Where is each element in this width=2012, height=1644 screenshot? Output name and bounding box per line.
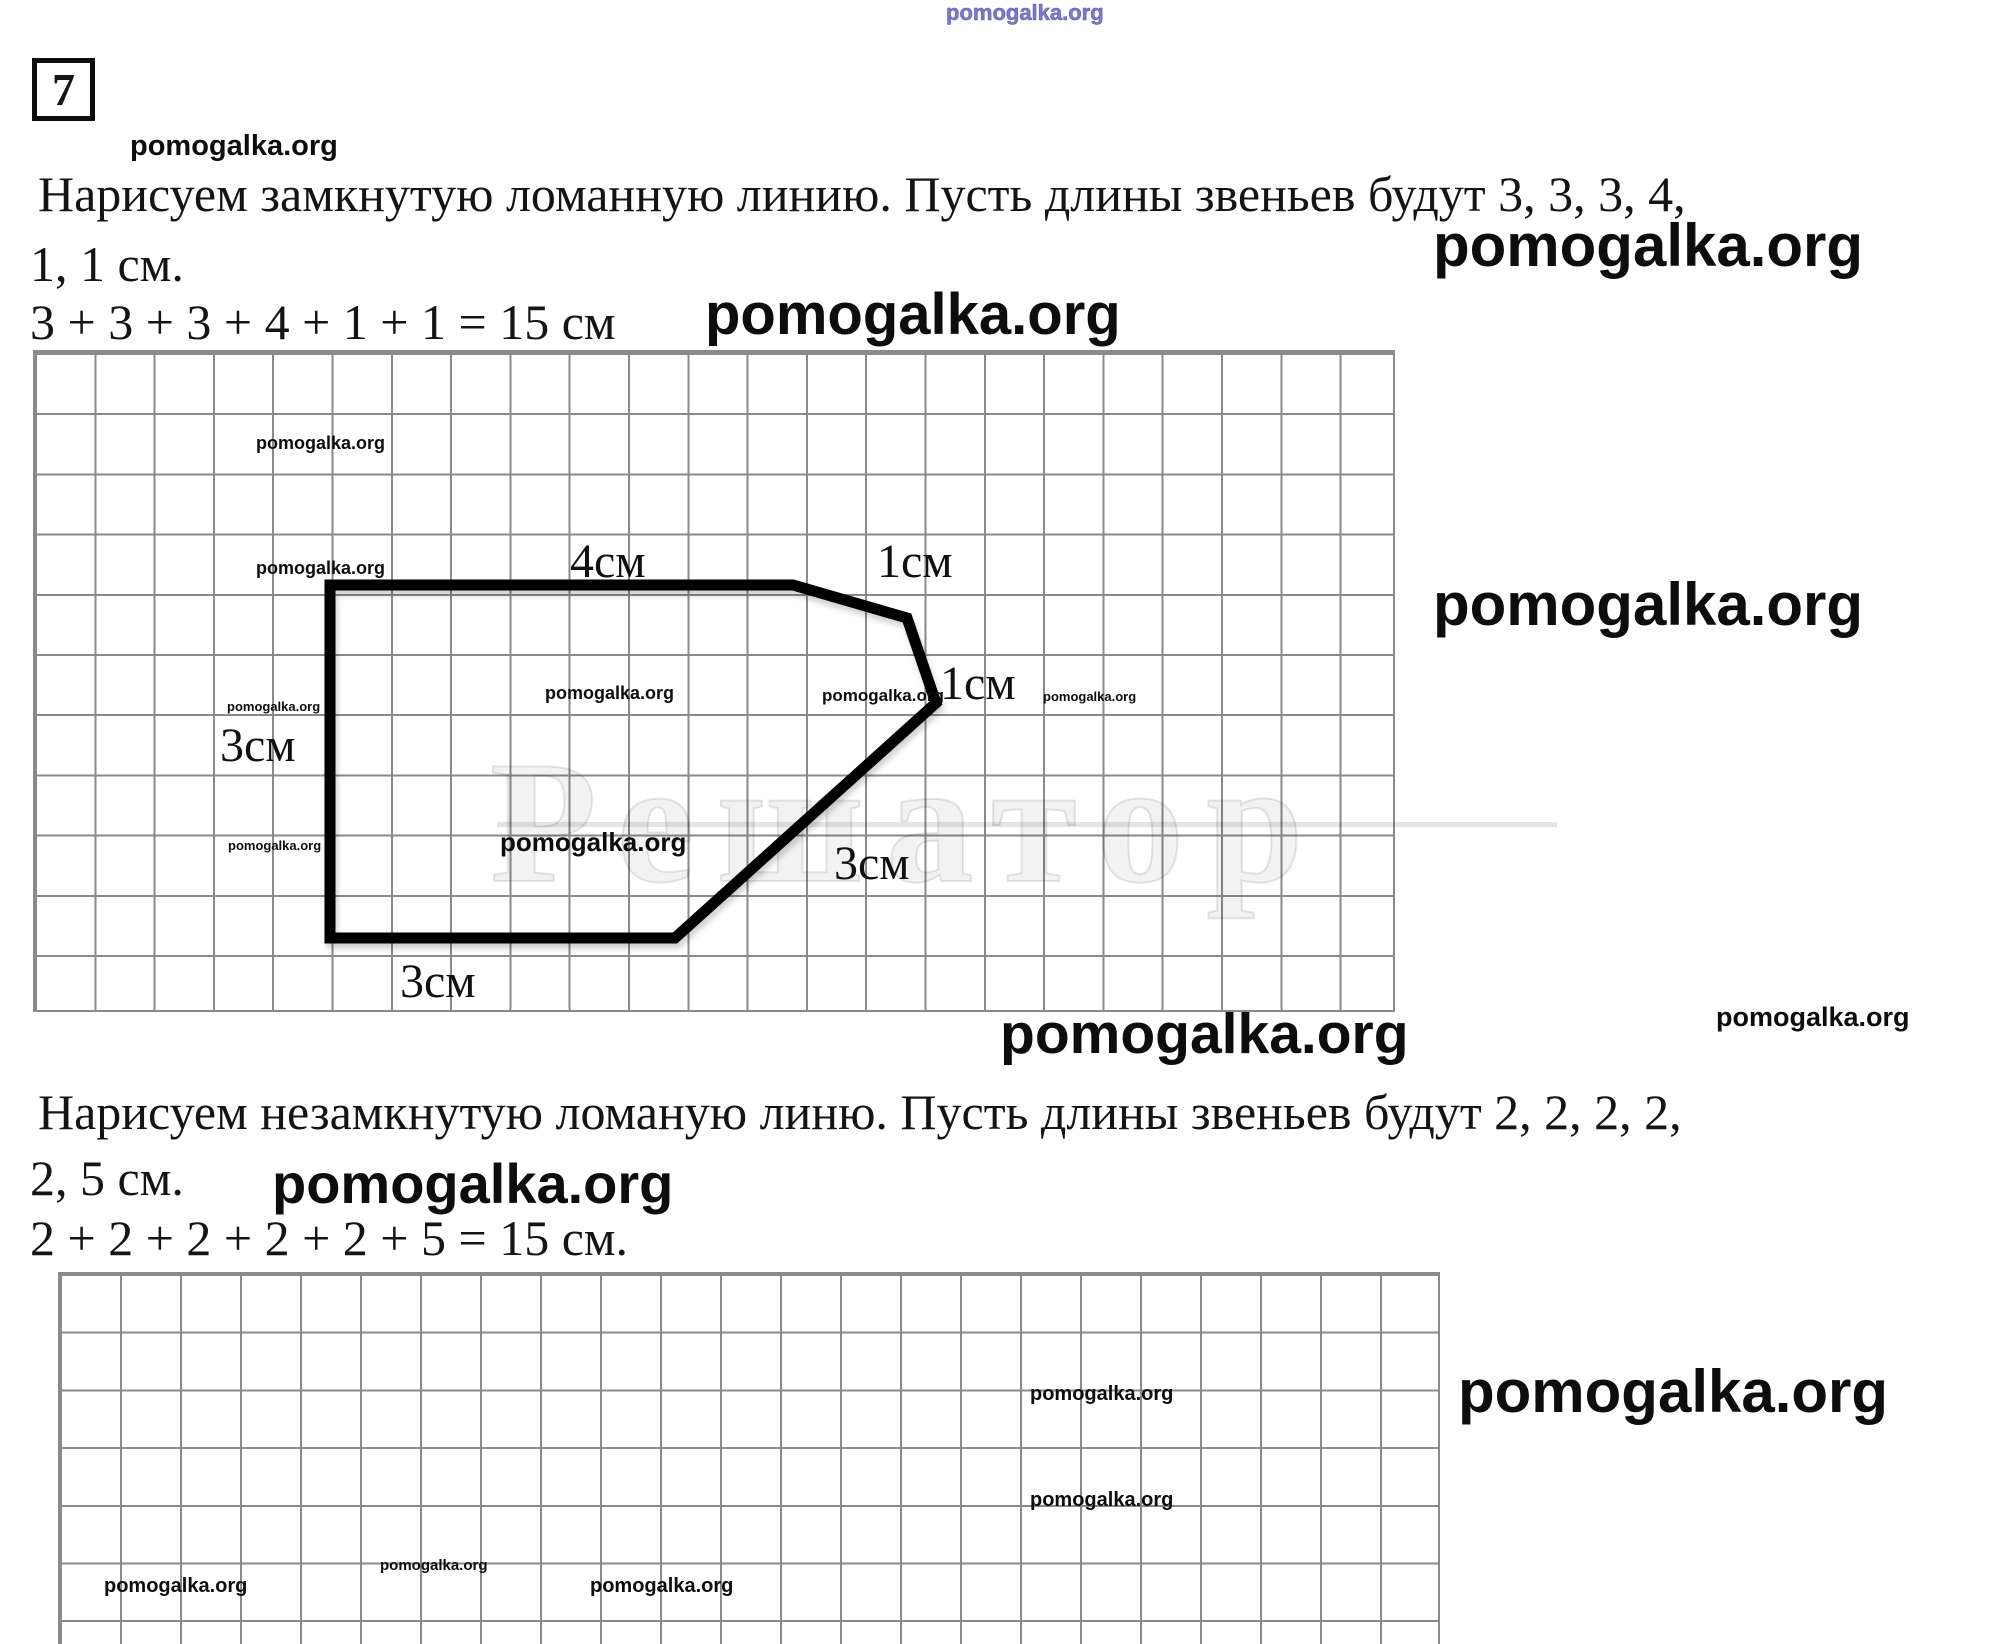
solution2-equation: 2 + 2 + 2 + 2 + 2 + 5 = 15 см. — [30, 1210, 628, 1268]
length-label-3cm-diagonal: 3см — [834, 840, 910, 888]
watermark: pomogalka.org — [822, 687, 944, 704]
length-label-1cm-right: 1см — [940, 660, 1016, 708]
watermark: pomogalka.org — [705, 286, 1121, 344]
figure2-grid — [58, 1272, 1440, 1644]
watermark: pomogalka.org — [1043, 690, 1136, 703]
solution1-line2: 1, 1 см. — [30, 236, 184, 294]
watermark: pomogalka.org — [256, 559, 385, 577]
watermark: pomogalka.org — [104, 1576, 247, 1596]
length-label-3cm-left: 3см — [220, 722, 296, 770]
watermark: pomogalka.org — [380, 1558, 488, 1573]
watermark: pomogalka.org — [1030, 1384, 1173, 1404]
watermark: pomogalka.org — [130, 132, 338, 161]
watermark: pomogalka.org — [1458, 1362, 1888, 1422]
watermark: pomogalka.org — [272, 1156, 673, 1212]
watermark: pomogalka.org — [1716, 1004, 1910, 1031]
watermark: pomogalka.org — [590, 1576, 733, 1596]
watermark: pomogalka.org — [1000, 1006, 1409, 1063]
watermark: pomogalka.org — [227, 700, 320, 713]
length-label-1cm-top: 1см — [877, 538, 953, 586]
watermark: pomogalka.org — [228, 839, 321, 852]
problem-number-box: 7 — [32, 58, 95, 121]
solution2-line2: 2, 5 см. — [30, 1150, 184, 1208]
length-label-4cm: 4см — [570, 538, 646, 586]
solution1-equation: 3 + 3 + 3 + 4 + 1 + 1 = 15 см — [30, 294, 616, 352]
solution-page: { "watermark": { "text": "pomogalka.org"… — [0, 0, 2012, 1644]
watermark: pomogalka.org — [1433, 216, 1863, 276]
watermark: pomogalka.org — [256, 434, 385, 452]
length-label-3cm-bottom: 3см — [400, 958, 476, 1006]
problem-number: 7 — [52, 63, 75, 116]
watermark: pomogalka.org — [1030, 1490, 1173, 1510]
watermark: pomogalka.org — [545, 684, 674, 702]
solution2-line1: Нарисуем незамкнутую ломаную линю. Пусть… — [38, 1084, 1682, 1142]
watermark: pomogalka.org — [946, 2, 1104, 24]
watermark: pomogalka.org — [1433, 575, 1863, 635]
watermark: pomogalka.org — [500, 829, 686, 855]
